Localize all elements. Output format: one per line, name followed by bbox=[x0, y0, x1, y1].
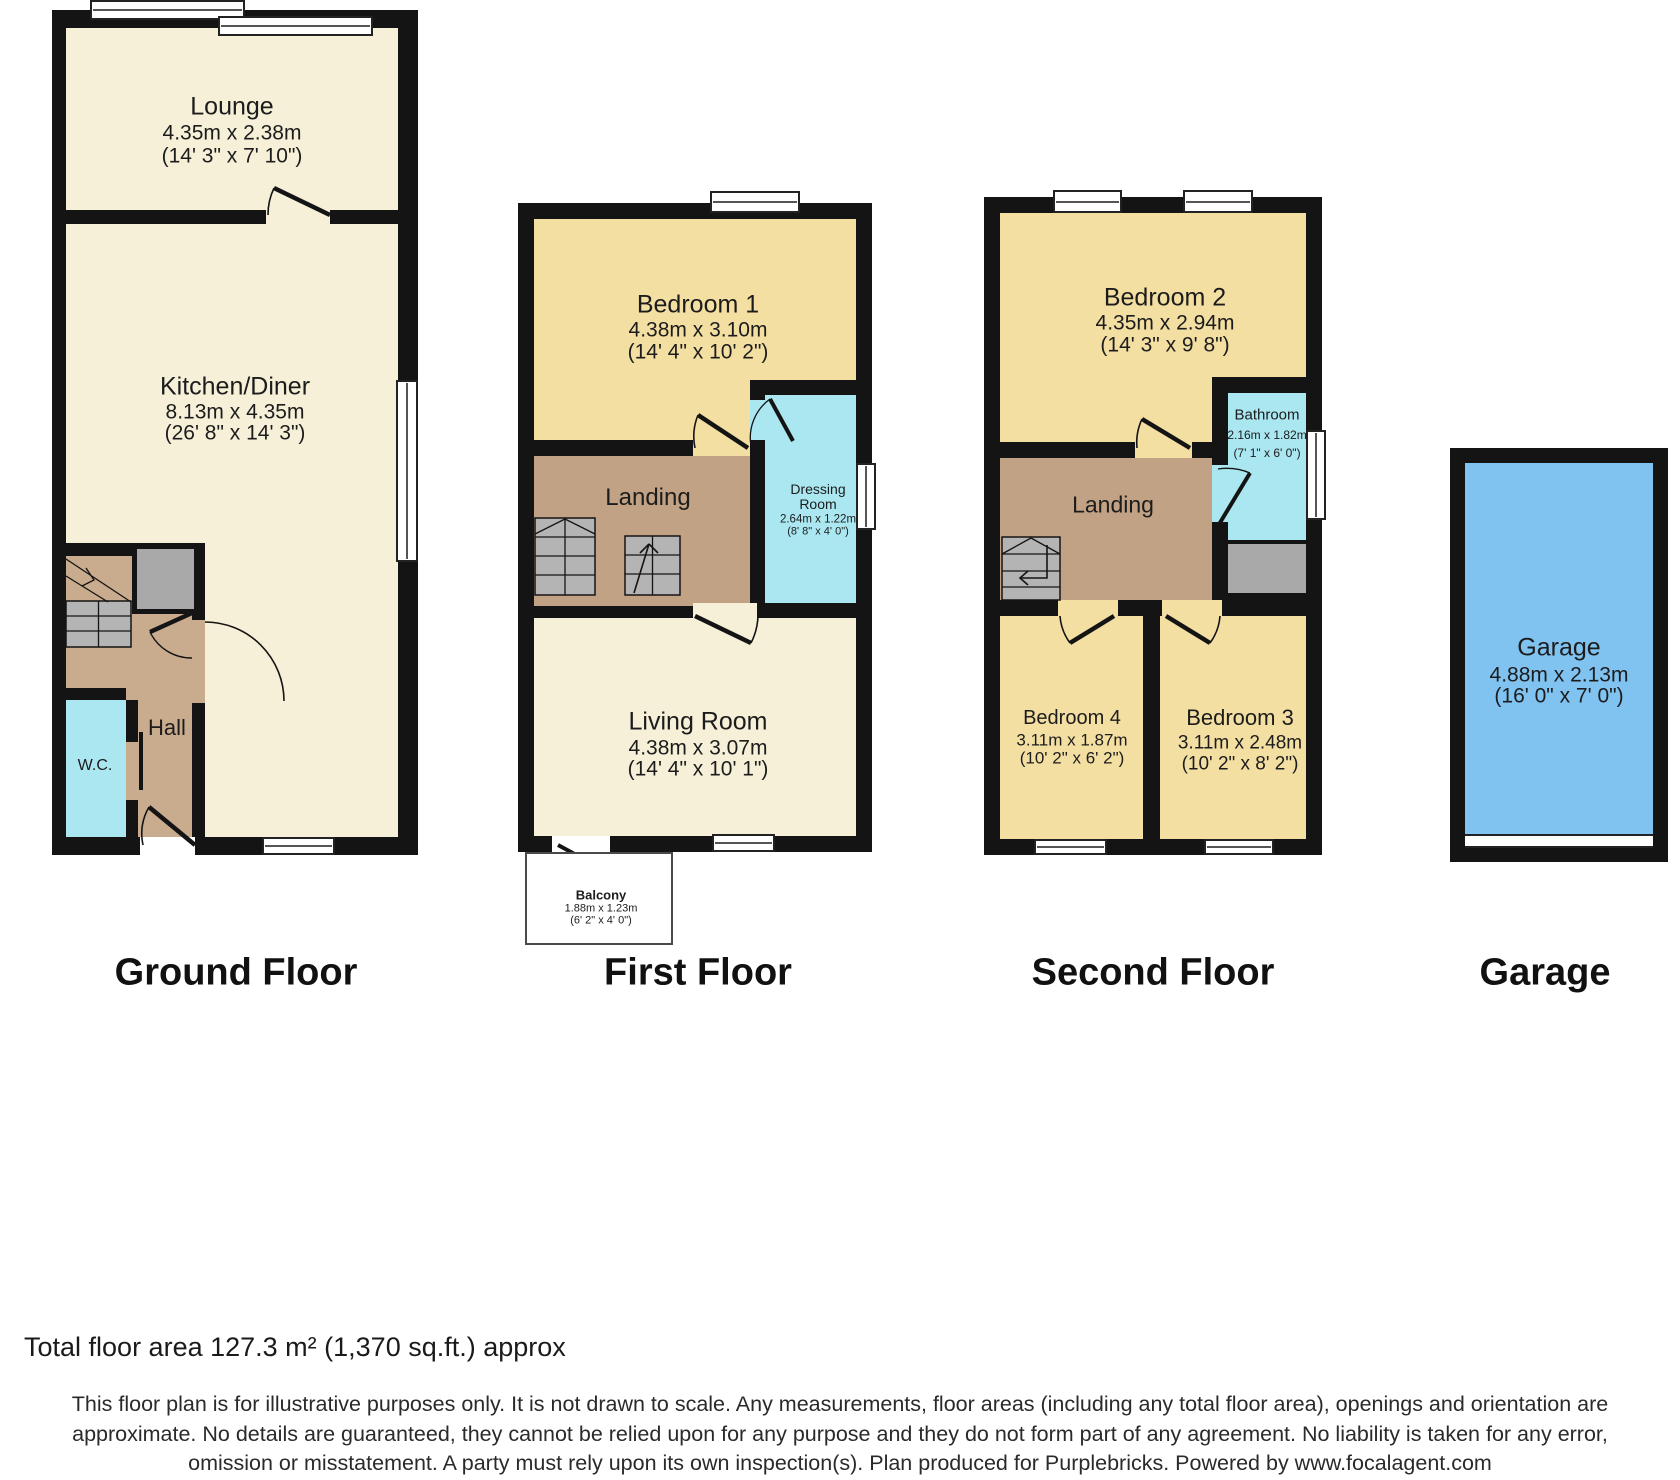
door-arc bbox=[1210, 616, 1220, 643]
room-name: Kitchen/Diner bbox=[160, 375, 310, 400]
room-name: Landing bbox=[1072, 494, 1154, 517]
room-dim-m: 4.38m x 3.07m bbox=[629, 738, 768, 759]
room-name: Bedroom 4 bbox=[1023, 708, 1121, 728]
room-name: Landing bbox=[605, 486, 690, 510]
room-name: Room bbox=[799, 497, 836, 511]
door-arc bbox=[1218, 468, 1250, 473]
room-name: Bedroom 3 bbox=[1186, 707, 1294, 729]
door-arc bbox=[268, 188, 274, 215]
room-dim-m: 4.35m x 2.38m bbox=[163, 123, 302, 144]
second-floor-title: Second Floor bbox=[1032, 952, 1275, 995]
door-leaf bbox=[1166, 616, 1210, 643]
room-dim-m: 3.11m x 2.48m bbox=[1178, 734, 1302, 753]
floor-plan-canvas: Lounge 4.35m x 2.38m (14' 3" x 7' 10") K… bbox=[0, 0, 1680, 1480]
ground-floor-title: Ground Floor bbox=[115, 952, 358, 995]
door-leaf bbox=[149, 807, 195, 845]
room-dim-m: 2.64m x 1.22m bbox=[780, 514, 856, 526]
room-name: W.C. bbox=[78, 758, 113, 774]
room-dim-m: 4.38m x 3.10m bbox=[629, 320, 768, 341]
room-name: Lounge bbox=[190, 95, 273, 120]
disclaimer-line: This floor plan is for illustrative purp… bbox=[0, 1390, 1680, 1420]
room-dim-ft: (14' 3" x 9' 8") bbox=[1100, 335, 1229, 356]
door-leaf bbox=[150, 613, 192, 632]
room-dim-ft: (10' 2" x 8' 2") bbox=[1182, 755, 1299, 774]
room-dim-ft: (14' 4" x 10' 2") bbox=[628, 342, 769, 363]
balcony: Balcony 1.88m x 1.23m (6' 2" x 4' 0") bbox=[525, 852, 673, 945]
room-dim-m: 8.13m x 4.35m bbox=[166, 402, 305, 423]
door-arc bbox=[1060, 616, 1070, 643]
staircase bbox=[535, 518, 595, 595]
disclaimer: This floor plan is for illustrative purp… bbox=[0, 1390, 1680, 1479]
staircase bbox=[1002, 537, 1060, 600]
room-dim-m: 4.88m x 2.13m bbox=[1490, 665, 1629, 686]
room-name: Dressing bbox=[790, 482, 845, 496]
room-dim-m: 4.35m x 2.94m bbox=[1096, 313, 1235, 334]
door-leaf bbox=[770, 399, 793, 441]
room-dim-m: 3.11m x 1.87m bbox=[1016, 732, 1127, 749]
room-name: Balcony bbox=[576, 889, 627, 902]
first-floor-plan: Bedroom 1 4.38m x 3.10m (14' 4" x 10' 2"… bbox=[518, 203, 872, 852]
room-name: Garage bbox=[1517, 636, 1600, 661]
door-arc bbox=[750, 399, 770, 446]
room-dim-ft: (7' 1" x 6' 0") bbox=[1233, 447, 1300, 459]
total-floor-area: Total floor area 127.3 m² (1,370 sq.ft.)… bbox=[24, 1332, 566, 1363]
door-arc bbox=[142, 807, 149, 845]
disclaimer-line: approximate. No details are guaranteed, … bbox=[0, 1420, 1680, 1450]
door-arc bbox=[751, 616, 758, 643]
room-dim-ft: (16' 0" x 7' 0") bbox=[1494, 686, 1623, 707]
first-floor-title: First Floor bbox=[604, 952, 792, 995]
staircase bbox=[66, 559, 131, 647]
room-dim-ft: (10' 2" x 6' 2") bbox=[1020, 750, 1125, 767]
door-leaf bbox=[1070, 616, 1114, 643]
garage-plan: Garage 4.88m x 2.13m (16' 0" x 7' 0") bbox=[1450, 448, 1668, 862]
room-dim-ft: (14' 4" x 10' 1") bbox=[628, 759, 769, 780]
door-arc bbox=[205, 622, 284, 701]
room-dim-ft: (26' 8" x 14' 3") bbox=[165, 423, 306, 444]
door-leaf bbox=[695, 616, 751, 643]
door-leaf bbox=[698, 415, 748, 448]
room-dim-ft: (6' 2" x 4' 0") bbox=[570, 916, 632, 927]
garage-door bbox=[1465, 834, 1653, 848]
room-dim-ft: (8' 8" x 4' 0") bbox=[787, 527, 849, 538]
door-leaf bbox=[1142, 419, 1190, 448]
room-dim-m: 2.16m x 1.82m bbox=[1227, 429, 1306, 441]
second-floor-plan: Bedroom 2 4.35m x 2.94m (14' 3" x 9' 8")… bbox=[984, 197, 1322, 855]
door-arc bbox=[694, 415, 698, 448]
door-arc bbox=[150, 632, 192, 658]
door-arc bbox=[1137, 419, 1142, 448]
room-dim-m: 1.88m x 1.23m bbox=[565, 904, 638, 915]
room-dim-ft: (14' 3" x 7' 10") bbox=[162, 146, 303, 167]
room-name: Bedroom 2 bbox=[1104, 286, 1226, 311]
door-leaf bbox=[1218, 473, 1250, 526]
ground-floor-plan: Lounge 4.35m x 2.38m (14' 3" x 7' 10") K… bbox=[52, 10, 418, 855]
door-leaf bbox=[274, 188, 330, 215]
garage-title: Garage bbox=[1480, 952, 1611, 995]
room-name: Hall bbox=[148, 717, 186, 739]
room-name: Living Room bbox=[629, 710, 768, 735]
room-name: Bathroom bbox=[1234, 408, 1299, 423]
room-name: Bedroom 1 bbox=[637, 293, 759, 318]
staircase bbox=[625, 536, 680, 595]
disclaimer-line: omission or misstatement. A party must r… bbox=[0, 1449, 1680, 1479]
